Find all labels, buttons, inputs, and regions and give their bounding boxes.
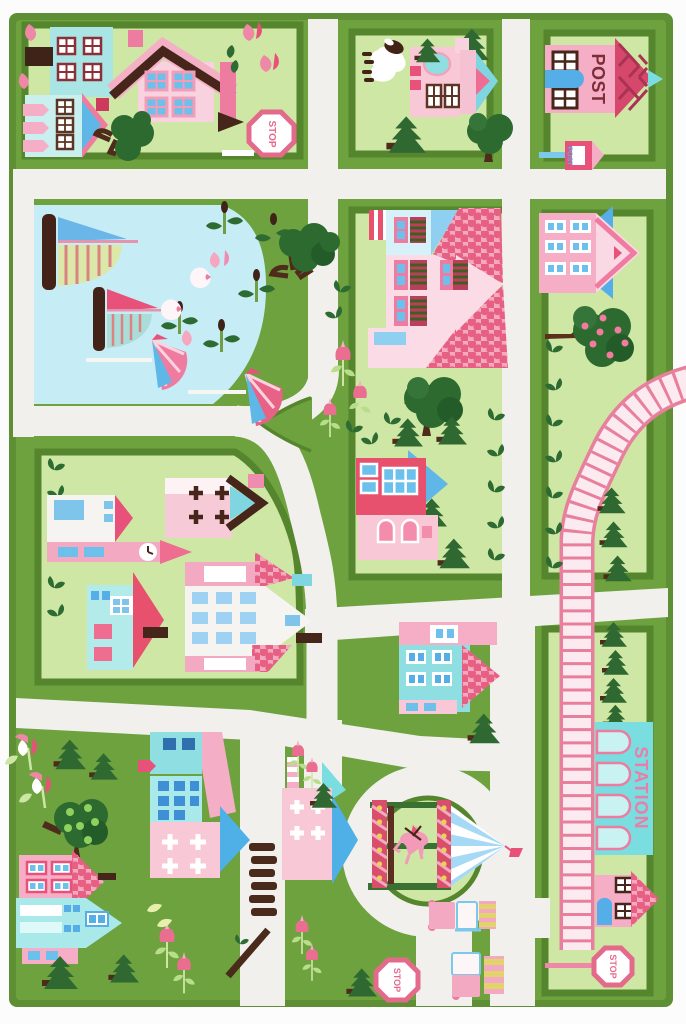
svg-text:STOP: STOP bbox=[392, 968, 402, 992]
svg-text:STOP: STOP bbox=[608, 954, 618, 978]
svg-text:POST: POST bbox=[588, 53, 608, 104]
svg-text:STATION: STATION bbox=[631, 746, 651, 829]
svg-text:STOP: STOP bbox=[266, 120, 277, 147]
svg-text:POST: POST bbox=[566, 146, 573, 166]
